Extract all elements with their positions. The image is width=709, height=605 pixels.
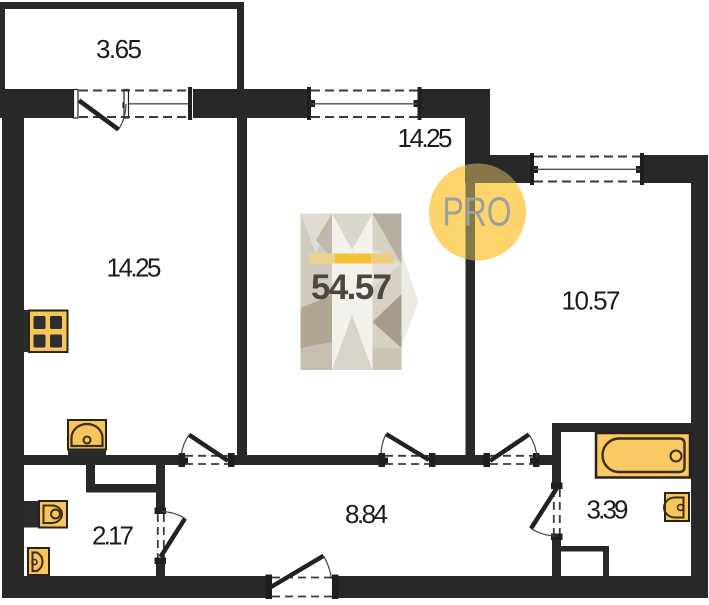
svg-text:PRO: PRO xyxy=(443,189,512,235)
svg-text:8.84: 8.84 xyxy=(345,499,388,529)
svg-text:10.57: 10.57 xyxy=(562,286,621,316)
svg-text:3.65: 3.65 xyxy=(96,34,142,64)
svg-text:3.39: 3.39 xyxy=(587,495,629,525)
svg-text:2.17: 2.17 xyxy=(92,521,134,551)
svg-text:14.25: 14.25 xyxy=(107,253,162,283)
svg-text:54.57: 54.57 xyxy=(311,268,392,307)
svg-text:14.25: 14.25 xyxy=(398,123,453,153)
